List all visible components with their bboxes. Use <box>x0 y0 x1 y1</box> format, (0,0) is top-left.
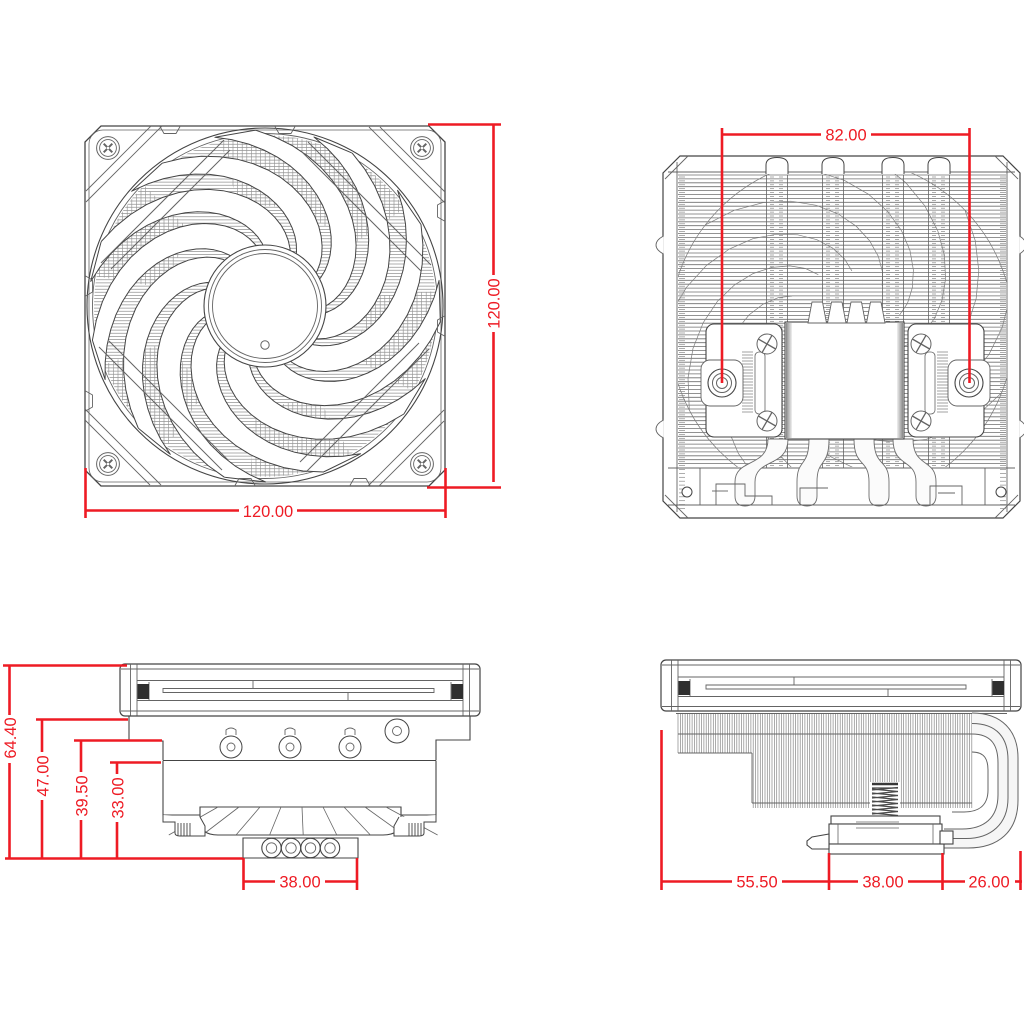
svg-text:33.00: 33.00 <box>110 777 128 818</box>
svg-text:82.00: 82.00 <box>825 127 866 145</box>
svg-text:64.40: 64.40 <box>2 717 20 758</box>
svg-text:120.00: 120.00 <box>243 503 293 521</box>
svg-text:38.00: 38.00 <box>279 874 320 892</box>
svg-text:26.00: 26.00 <box>968 874 1009 892</box>
svg-text:39.50: 39.50 <box>74 775 92 816</box>
svg-text:55.50: 55.50 <box>736 874 777 892</box>
svg-text:120.00: 120.00 <box>486 278 504 328</box>
svg-text:47.00: 47.00 <box>35 755 53 796</box>
svg-text:38.00: 38.00 <box>862 874 903 892</box>
